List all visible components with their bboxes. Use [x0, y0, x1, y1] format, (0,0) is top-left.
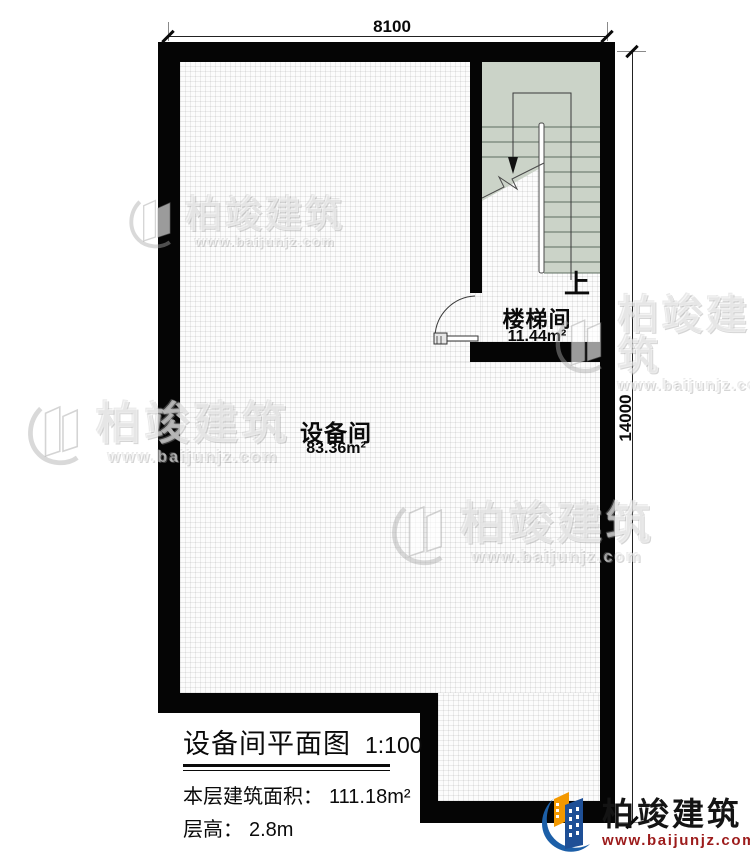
room-area-stairwell: 11.44m² [487, 328, 587, 346]
floor-height-label: 层高： [183, 813, 243, 842]
floor-equipment-room-bottom [438, 693, 600, 801]
floor-plan-page: 8100 14000 设备间 83.36m² 楼梯间 11.44m² 上 设备间… [0, 0, 750, 865]
door-swing [430, 290, 484, 350]
title-underline [183, 764, 390, 771]
door-arc [435, 296, 475, 336]
logo-building-icon [536, 789, 598, 857]
staircase-drawing [482, 62, 600, 284]
dimension-value-right: 14000 [616, 358, 636, 478]
plan-scale: 1:100 [365, 732, 423, 759]
watermark-url: www.baijunjz.com [618, 378, 750, 394]
floor-area-label: 本层建筑面积： [183, 780, 323, 809]
title-block: 设备间平面图 1:100 本层建筑面积： 111.18m² 层高： 2.8m [183, 722, 423, 842]
wall-stairwell-left [470, 42, 482, 293]
floor-area-value: 111.18m² [329, 786, 411, 809]
logo-text: 柏竣建筑 [602, 798, 750, 830]
wall-bottom-left [158, 693, 438, 713]
room-area-equipment: 83.36m² [276, 440, 396, 458]
floor-height-value: 2.8m [249, 819, 293, 842]
stair-handrail [539, 123, 544, 273]
floor-equipment-room-mid [180, 362, 600, 693]
dimension-value-top: 8100 [342, 17, 442, 37]
watermark-text: 柏竣建筑 [618, 295, 750, 377]
company-logo: 柏竣建筑 www.baijunjz.com [536, 789, 750, 857]
wall-left [158, 42, 180, 713]
floor-equipment-room [180, 62, 470, 362]
wall-top [158, 42, 615, 62]
plan-title: 设备间平面图 [183, 722, 351, 761]
watermark-building-icon [24, 399, 89, 469]
logo-url: www.baijunjz.com [602, 832, 750, 849]
wall-right [600, 42, 615, 823]
door-leaf-end [434, 333, 447, 344]
stairs-up-label: 上 [564, 264, 590, 301]
